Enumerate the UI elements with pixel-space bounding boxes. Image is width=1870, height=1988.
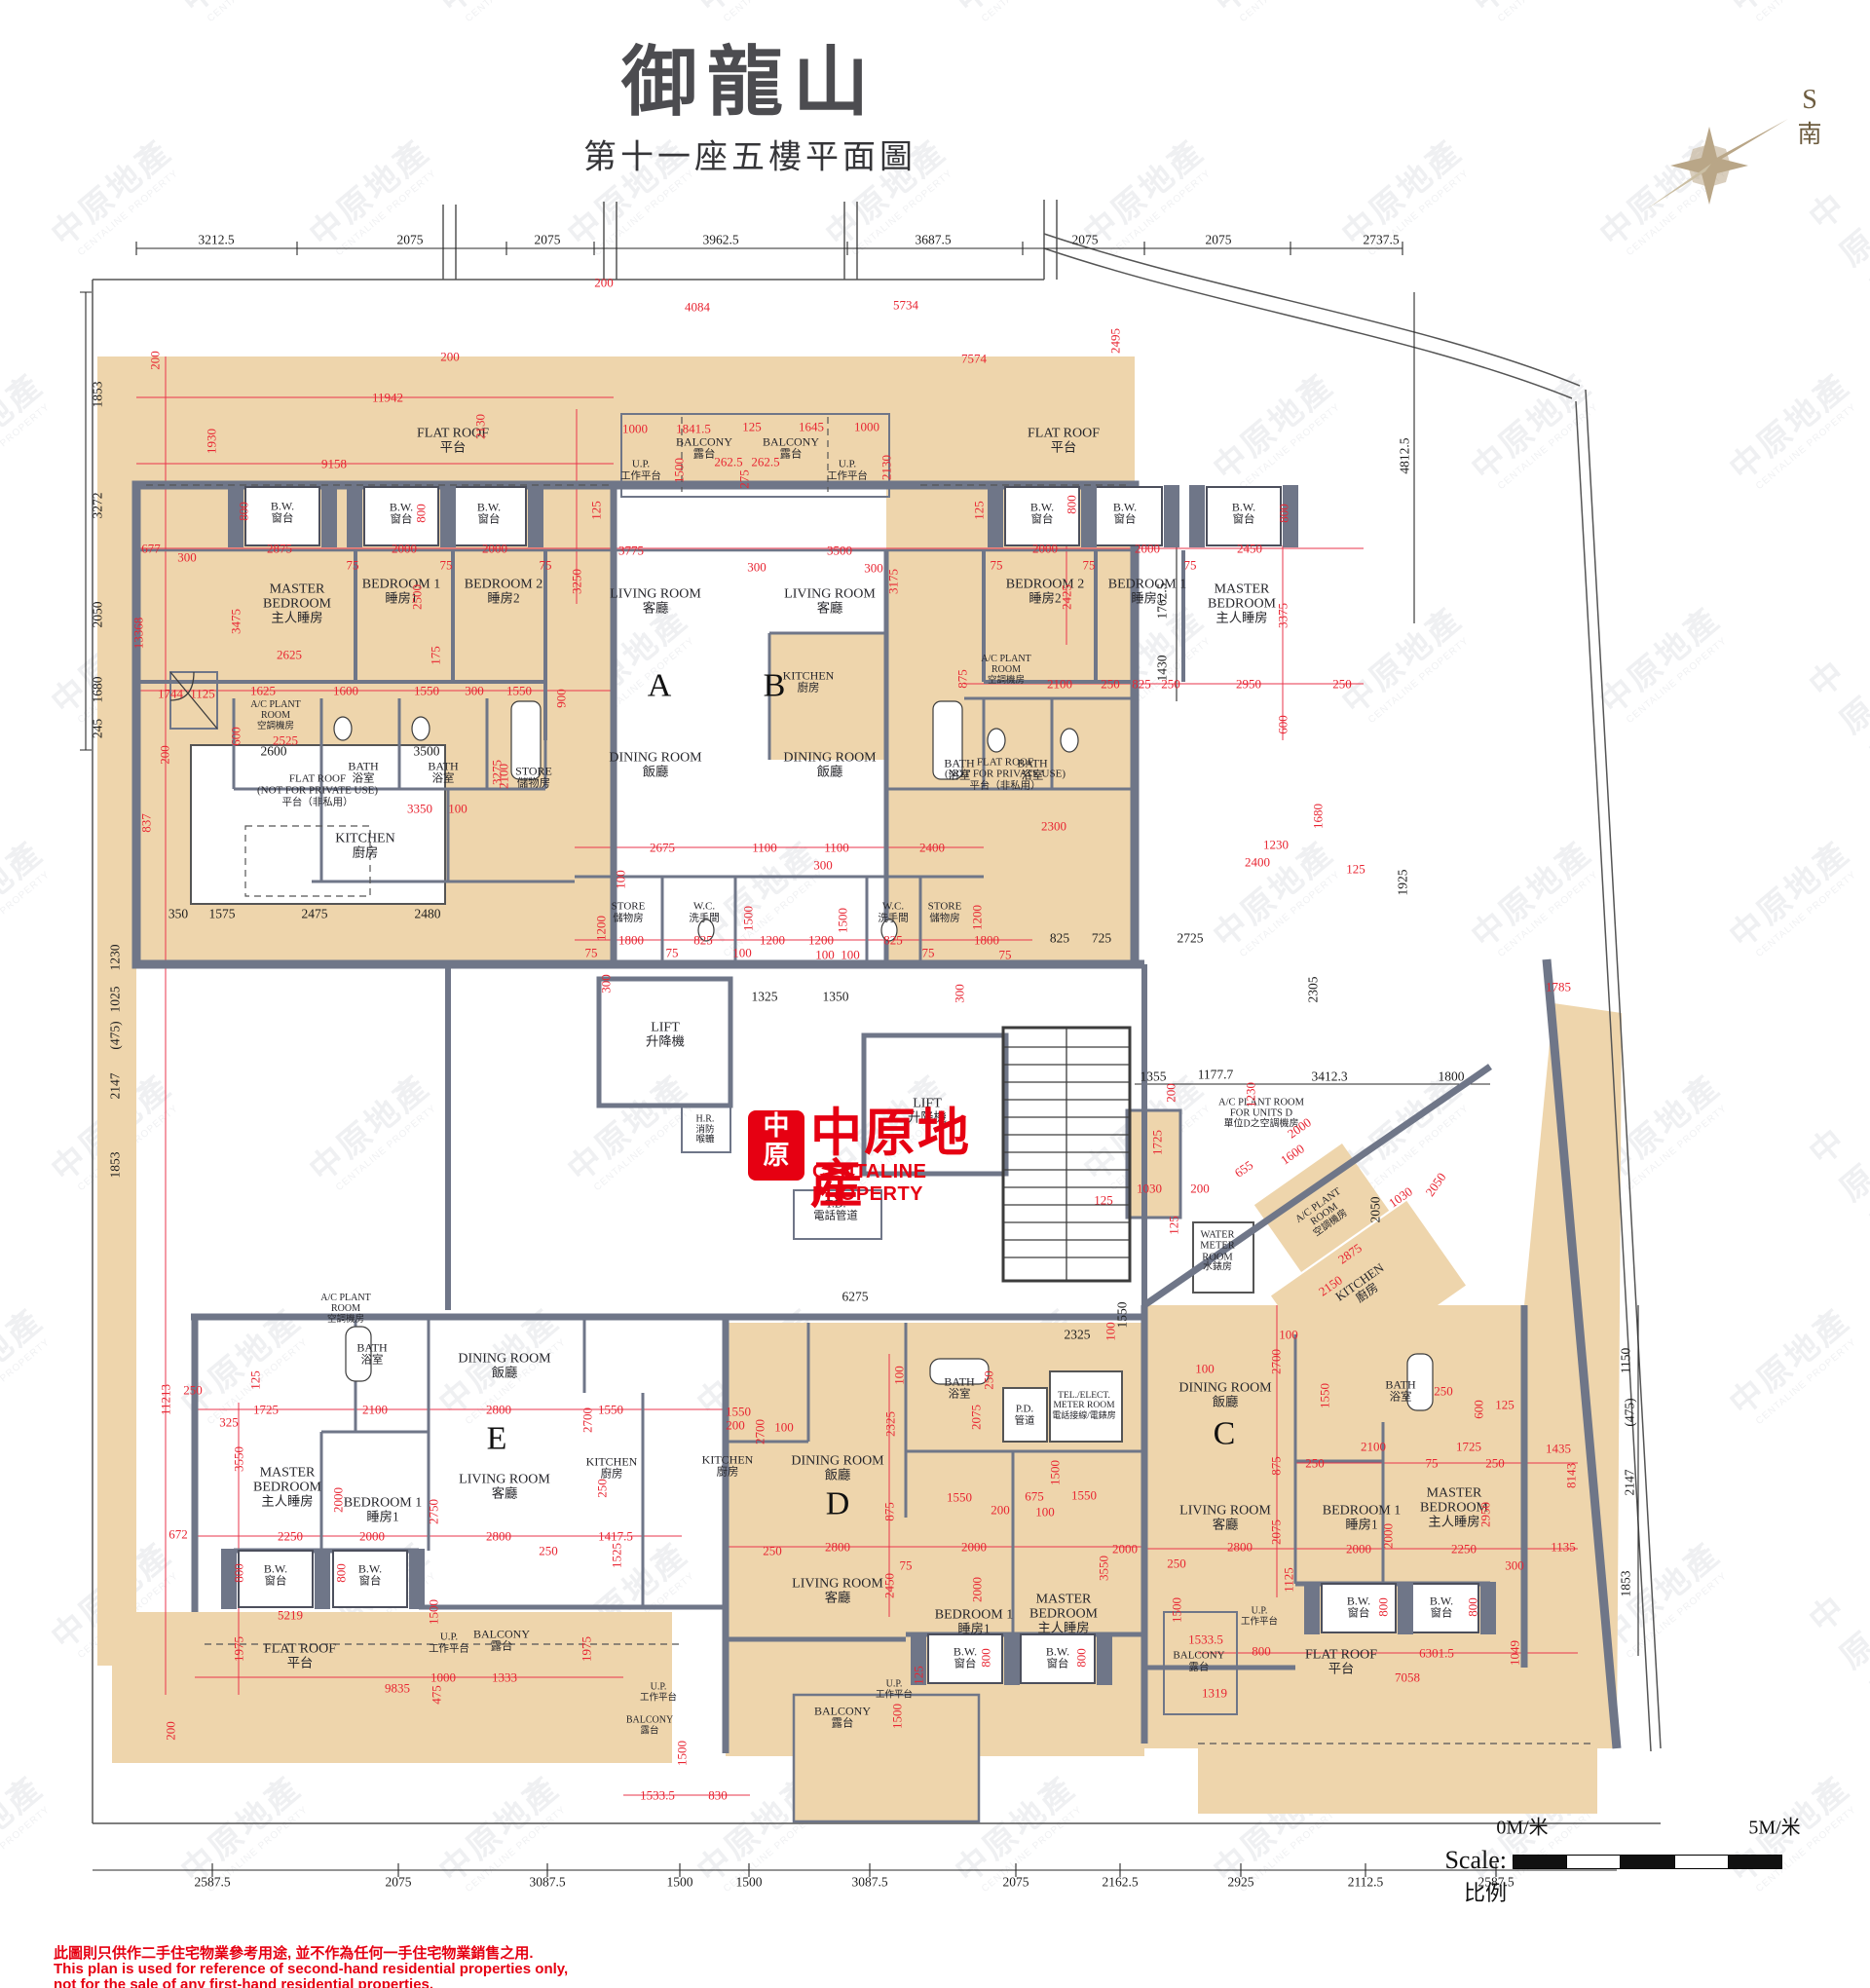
dimension-label: 100: [815, 949, 835, 961]
dimension-label: 100: [615, 870, 627, 889]
centaline-seal-icon: 中 原: [748, 1110, 804, 1181]
dimension-label: 7574: [961, 353, 987, 365]
dimension-label: 800: [238, 502, 250, 521]
dimension-label: 100: [1035, 1506, 1055, 1519]
dimension-label: 250: [763, 1545, 782, 1557]
dimension-label: 2700: [581, 1407, 594, 1433]
compass-south-hanzi: 南: [1797, 115, 1821, 150]
dimension-label: 75: [999, 949, 1012, 961]
dimension-label: 6301.5: [1419, 1647, 1454, 1660]
dimension-label: 125: [1495, 1399, 1515, 1411]
dimension-label: 2750: [428, 1499, 440, 1524]
dimension-label: 1000: [854, 421, 879, 433]
dimension-label: 2500: [411, 584, 424, 610]
dimension-label: 3275: [491, 760, 504, 785]
dimension-label: 3175: [887, 569, 900, 594]
dimension-label: 300: [954, 984, 966, 1003]
dimension-label: 1800: [618, 934, 644, 947]
dimension-label: 800: [980, 1648, 992, 1668]
dimension-label: 2950: [1236, 678, 1261, 691]
dimension-label: 250: [183, 1384, 203, 1397]
dimension-label: 125: [1346, 863, 1365, 876]
dimension-label: 1125: [1283, 1567, 1295, 1593]
dimension-label: 2000: [392, 543, 417, 555]
dimension-label: 2800: [825, 1541, 850, 1554]
dimension-label: 100: [774, 1421, 794, 1434]
dimension-label: 175: [430, 646, 442, 665]
dimension-label: 100: [1195, 1363, 1215, 1375]
dimension-label: 600: [1473, 1400, 1485, 1419]
dimension-label: 250: [1485, 1457, 1505, 1470]
dimension-label: 125: [1094, 1194, 1113, 1207]
dimension-label: 250: [596, 1479, 609, 1498]
scale-bar: [1513, 1855, 1782, 1869]
dimension-label: 2150: [1317, 1273, 1345, 1298]
dimension-label: 1975: [580, 1636, 593, 1662]
dimension-label: 800: [1278, 504, 1290, 523]
dimension-label: 1533.5: [640, 1789, 675, 1802]
dimension-label: 1500: [1049, 1460, 1062, 1485]
dimension-label: 800: [1075, 1648, 1088, 1668]
dimension-label: 900: [555, 689, 568, 708]
dimension-label: 1625: [250, 685, 276, 697]
dimension-label: 1049: [1509, 1640, 1521, 1666]
dimension-label: 100: [841, 949, 860, 961]
dimension-label: 1975: [233, 1636, 245, 1662]
dimension-label: 300: [747, 561, 767, 574]
dimension-label: 1680: [1312, 804, 1325, 829]
dimension-label: 2875: [267, 543, 292, 555]
dimension-label: 2800: [486, 1530, 511, 1543]
dimension-label: 1550: [947, 1491, 972, 1504]
dimension-label: 1525: [611, 1543, 623, 1568]
dimension-label: 5219: [278, 1609, 303, 1622]
dimension-label: 11942: [372, 392, 403, 404]
dimension-label: 250: [539, 1545, 558, 1557]
dimension-label: 1100: [824, 842, 849, 854]
dimension-label: 100: [1104, 1322, 1117, 1341]
dimension-label: 125: [1168, 1216, 1180, 1235]
dimension-label: 1550: [598, 1404, 623, 1416]
dimension-label: 1800: [974, 934, 999, 947]
dimension-label: 8143: [1565, 1463, 1578, 1488]
dimension-label: 3350: [407, 803, 432, 815]
dimension-label: 262.5: [751, 456, 779, 469]
dimension-label: 3550: [233, 1446, 245, 1472]
dimension-label: 830: [708, 1789, 728, 1802]
dimension-label: 200: [1190, 1182, 1210, 1195]
dimension-label: 1000: [430, 1671, 456, 1684]
dimension-label: 2325: [884, 1411, 897, 1437]
dimension-label: 1200: [808, 934, 834, 947]
dimension-label: 2450: [883, 1573, 896, 1598]
dimension-label: 2050: [1423, 1171, 1448, 1199]
dimension-label: 800: [415, 504, 428, 523]
dimension-label: 200: [149, 351, 162, 370]
dimension-label: 2000: [1032, 543, 1058, 555]
dimension-label: 13368: [132, 618, 145, 650]
dimension-label: 2250: [278, 1530, 303, 1543]
dimension-label: 200: [1165, 1083, 1178, 1103]
dimension-label: 250: [1332, 678, 1352, 691]
dimension-label: 1100: [752, 842, 777, 854]
dimension-label: 300: [813, 859, 833, 872]
disclaimer-english-1: This plan is used for reference of secon…: [54, 1962, 568, 1976]
dimension-label: 837: [140, 813, 153, 833]
dimension-label: 1930: [206, 429, 218, 454]
dimension-label: 2950: [1479, 1502, 1492, 1527]
dimension-label: 4084: [685, 301, 710, 314]
compass-south-letter: S: [1802, 85, 1817, 116]
dimension-label: 300: [177, 551, 197, 564]
dimension-label: 1200: [971, 905, 984, 930]
page-title: 御龍山: [621, 21, 879, 131]
dimension-label: 2700: [754, 1419, 767, 1444]
dimension-label: 200: [726, 1419, 745, 1432]
dimension-label: 2875: [1336, 1241, 1365, 1266]
dimension-label: 250: [1161, 678, 1180, 691]
dimension-label: 2075: [1270, 1519, 1283, 1545]
dimension-label: 75: [540, 559, 552, 572]
dimension-label: 800: [1377, 1597, 1390, 1617]
dimension-label: 3550: [1098, 1556, 1110, 1581]
dimension-label: 300: [1505, 1559, 1524, 1572]
dimension-label: 2625: [277, 649, 302, 661]
dimension-label: 800: [1252, 1645, 1271, 1658]
dimension-label: 1500: [676, 1741, 689, 1766]
dimension-label: 1319: [1202, 1687, 1227, 1700]
dimension-label: 2100: [362, 1404, 388, 1416]
dimension-label: 1135: [1551, 1541, 1576, 1554]
dimension-label: 2300: [1041, 820, 1066, 833]
dimension-label: 100: [732, 947, 752, 959]
dimension-label: 125: [590, 501, 603, 520]
dimension-label: 2000: [482, 543, 507, 555]
dimension-label: 3775: [618, 544, 644, 557]
disclaimer-chinese: 此圖則只供作二手住宅物業參考用途, 並不作為任何一手住宅物業銷售之用.: [54, 1946, 568, 1961]
dimension-label: 75: [922, 947, 935, 959]
dimension-label: 677: [141, 543, 161, 555]
dimension-label: 125: [249, 1370, 262, 1390]
dimension-label: 675: [1025, 1490, 1044, 1503]
scale-five-label: 5M/米: [1748, 1812, 1800, 1840]
dimension-label: 100: [448, 803, 467, 815]
dimension-label: 1725: [1456, 1441, 1481, 1453]
dimension-label: 1550: [1071, 1489, 1097, 1502]
dimension-label: 125: [742, 421, 762, 433]
dimension-label: 825: [693, 934, 713, 947]
dimension-label: 1600: [333, 685, 358, 697]
seal-char-bottom: 原: [748, 1142, 804, 1171]
dimension-label: 1533.5: [1188, 1633, 1223, 1646]
dimension-label: 475: [430, 1685, 443, 1705]
dimension-label: 75: [440, 559, 453, 572]
dimension-label: 1500: [742, 906, 755, 931]
dimension-label: 875: [883, 1502, 896, 1521]
dimension-label: 75: [347, 559, 359, 572]
dimension-label: 1600: [1279, 1142, 1307, 1167]
scale-label: Scale:: [1444, 1846, 1507, 1875]
dimension-label: 2400: [919, 842, 945, 854]
dimension-label: 800: [233, 1563, 245, 1583]
dimension-label: 2000: [1382, 1523, 1395, 1549]
dimension-label: 2130: [474, 414, 487, 439]
dimension-label: 825: [1132, 678, 1151, 691]
dimension-label: 200: [991, 1504, 1010, 1517]
dimension-label: 1000: [622, 423, 648, 435]
dimension-label: 2000: [1112, 1543, 1138, 1556]
dimension-label: 75: [585, 947, 598, 959]
dimension-label: 200: [165, 1721, 177, 1741]
dimension-label: 2450: [1237, 543, 1262, 555]
dimension-label: 1030: [1137, 1182, 1162, 1195]
dimension-label: 250: [983, 1370, 995, 1390]
dimension-label: 1435: [1546, 1443, 1571, 1455]
dimension-label: 2000: [1135, 543, 1160, 555]
dimension-label: 1200: [595, 916, 608, 941]
dimension-label: 1125: [190, 688, 215, 700]
dimension-label: 2000: [961, 1541, 987, 1554]
dimension-label: 1500: [1171, 1597, 1183, 1623]
dimension-label: 875: [1270, 1456, 1283, 1476]
dimension-label: 300: [600, 974, 613, 994]
dimension-label: 200: [159, 745, 171, 765]
dimension-label: 125: [973, 501, 986, 520]
floor-plan-sheet: 中原地產CENTALINE PROPERTY中原地產CENTALINE PROP…: [0, 0, 1870, 1988]
dimension-label: 1550: [414, 685, 439, 697]
dimension-label: 1550: [1319, 1383, 1331, 1408]
dimension-label: 7058: [1395, 1671, 1420, 1684]
dimension-label: 2100: [1047, 678, 1072, 691]
dimension-label: 250: [1305, 1457, 1325, 1470]
dimension-label: 2525: [273, 734, 298, 747]
dimension-label: 11213: [160, 1384, 172, 1415]
dimension-label: 672: [168, 1528, 188, 1541]
dimension-label: 125: [913, 1666, 925, 1685]
dimension-label: 2495: [1109, 328, 1122, 354]
dimension-label: 300: [465, 685, 484, 697]
dimension-label: 2425: [1061, 584, 1073, 610]
dimension-label: 75: [991, 559, 1003, 572]
dimension-label: 2075: [970, 1405, 983, 1430]
dimension-label: 9835: [385, 1682, 410, 1695]
dimension-label: 200: [440, 351, 460, 363]
dimension-label: 800: [1066, 495, 1078, 514]
dimension-label: 2700: [1270, 1349, 1283, 1374]
dimension-label: 1500: [428, 1599, 440, 1625]
dimension-label: 3250: [571, 569, 583, 594]
dimension-label: 825: [883, 934, 903, 947]
dimension-label: 1645: [799, 421, 824, 433]
dimension-label: 262.5: [714, 456, 742, 469]
dimension-label: 1725: [253, 1404, 279, 1416]
scale-label-chinese: 比例: [1464, 1876, 1507, 1907]
dimension-label: 200: [594, 277, 614, 289]
dimension-label: 2100: [1361, 1441, 1386, 1453]
dimension-label: 250: [1167, 1557, 1186, 1570]
page-subtitle: 第十一座五樓平面圖: [583, 131, 916, 178]
dimension-label: 875: [956, 669, 969, 689]
disclaimer: 此圖則只供作二手住宅物業參考用途, 並不作為任何一手住宅物業銷售之用. This…: [54, 1946, 568, 1988]
dimension-label: 600: [230, 727, 243, 746]
dimension-label: 2400: [1245, 856, 1270, 869]
disclaimer-english-2: not for the sale of any first-hand resid…: [54, 1977, 568, 1988]
dimension-label: 2000: [1346, 1543, 1371, 1556]
dimension-label: 1744: [158, 688, 183, 700]
dimension-label: 275: [738, 469, 751, 489]
dimension-label: 800: [335, 1563, 348, 1583]
dimension-label: 1230: [1263, 839, 1289, 851]
dimension-label: 1230: [1245, 1082, 1257, 1107]
dimension-label: 1417.5: [598, 1530, 633, 1543]
dimension-label: 1333: [492, 1671, 517, 1684]
dimension-label: 75: [1184, 559, 1197, 572]
dimension-label: 75: [1426, 1457, 1439, 1470]
dimension-label: 100: [1279, 1329, 1298, 1341]
dimension-label: 2250: [1451, 1543, 1477, 1556]
dimension-label: 5734: [893, 299, 918, 312]
scale-zero-label: 0M/米: [1496, 1812, 1548, 1840]
dimension-label: 800: [1467, 1597, 1479, 1617]
dimension-label: 655: [1232, 1158, 1254, 1180]
dimension-label: 250: [1434, 1385, 1453, 1398]
centaline-logo-english: CENTALINE PROPERTY: [812, 1161, 1021, 1206]
dimension-label: 100: [893, 1366, 906, 1385]
dimension-label: 1030: [1387, 1184, 1415, 1210]
dimension-label: 1500: [837, 908, 849, 933]
dimension-label: 2675: [650, 842, 675, 854]
dimension-label: 600: [1277, 715, 1290, 734]
dimension-label: 2000: [1286, 1115, 1314, 1141]
dimension-label: 1550: [506, 685, 532, 697]
dimension-label: 2130: [880, 455, 893, 480]
dimension-label: 1550: [726, 1406, 751, 1418]
dimension-label: 2800: [1227, 1541, 1253, 1554]
dimension-label: 1785: [1546, 981, 1571, 994]
dimension-label: 3375: [1277, 603, 1290, 628]
dimension-label: 9158: [321, 458, 347, 470]
dimension-label: 1500: [891, 1704, 904, 1729]
dimension-label: 2000: [332, 1487, 345, 1513]
dimension-label: 3500: [827, 544, 852, 557]
dimension-label: 2800: [486, 1404, 511, 1416]
dimension-label: 1200: [760, 934, 785, 947]
dimension-label: 1725: [1151, 1130, 1164, 1155]
seal-char-top: 中: [748, 1112, 804, 1142]
dimension-label: 1500: [673, 458, 686, 483]
dimension-label: 75: [900, 1559, 913, 1572]
dimension-label: 1841.5: [676, 423, 711, 435]
dimension-label: 3475: [230, 609, 243, 634]
dimension-label: 75: [1083, 559, 1096, 572]
dimension-label: 2000: [971, 1577, 984, 1602]
dimension-label: 325: [219, 1416, 239, 1429]
dimension-label: 2000: [359, 1530, 385, 1543]
dimension-label: 300: [864, 562, 883, 575]
dimension-label: 75: [666, 947, 679, 959]
dimension-label: 250: [1101, 678, 1120, 691]
